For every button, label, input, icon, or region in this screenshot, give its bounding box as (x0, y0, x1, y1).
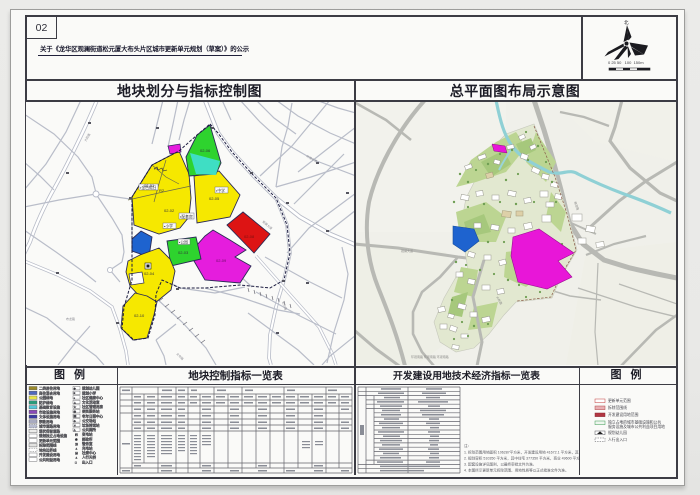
svg-text:市政设施用地: 市政设施用地 (39, 409, 60, 414)
svg-text:▲: ▲ (75, 456, 78, 460)
svg-text:●: ● (74, 396, 76, 400)
svg-text:▪公园: ▪公园 (179, 239, 188, 244)
svg-text:02-05: 02-05 (209, 196, 220, 201)
svg-text:▪小学: ▪小学 (164, 223, 173, 228)
svg-text:▼: ▼ (74, 423, 77, 427)
svg-text:0 25 50 100 150m: 0 25 50 100 150m (608, 60, 644, 65)
svg-text:4. 本图所示更新单元拆除范围、用地性质等以正式批准文件为准: 4. 本图所示更新单元拆除范围、用地性质等以正式批准文件为准。 (464, 468, 569, 473)
svg-text:02-10: 02-10 (134, 313, 145, 318)
svg-text:拆除范围线: 拆除范围线 (39, 443, 57, 448)
svg-text:出入口: 出入口 (82, 459, 93, 464)
svg-text:公共利益用地: 公共利益用地 (39, 457, 60, 462)
svg-text:◪: ◪ (75, 451, 78, 455)
svg-text:3. 配套设施详见图则，以最终审批文件为准。: 3. 配套设施详见图则，以最终审批文件为准。 (464, 462, 536, 467)
svg-text:城市道路用地: 城市道路用地 (39, 424, 60, 429)
svg-text:规划幼儿园: 规划幼儿园 (82, 386, 100, 391)
svg-text:02-06: 02-06 (200, 148, 211, 153)
svg-text:文化活动室: 文化活动室 (82, 400, 100, 405)
svg-text:地块边界线: 地块边界线 (39, 448, 57, 453)
svg-text:更新单元范围: 更新单元范围 (608, 398, 631, 403)
svg-text:布龙路: 布龙路 (66, 316, 75, 321)
svg-text:警务室: 警务室 (82, 441, 93, 446)
svg-text:公园绿地: 公园绿地 (39, 395, 53, 400)
svg-text:02-08: 02-08 (244, 234, 255, 239)
svg-text:02-03: 02-03 (178, 250, 189, 255)
svg-text:开发建设用地范围: 开发建设用地范围 (608, 412, 639, 417)
svg-text:人行天桥: 人行天桥 (82, 455, 96, 460)
svg-text:公交场站: 公交场站 (82, 418, 96, 423)
svg-text:充电站: 充电站 (82, 446, 93, 451)
svg-text:规划小学: 规划小学 (82, 390, 96, 395)
svg-text:拆除范围线: 拆除范围线 (608, 405, 627, 410)
svg-text:规划独立占地设施: 规划独立占地设施 (39, 433, 67, 438)
svg-text:观澜大道: 观澜大道 (401, 248, 413, 253)
svg-text:便民服务站: 便民服务站 (82, 409, 100, 414)
svg-text:1. 拆除范围用地面积 106287平方米，开发建设用地 4: 1. 拆除范围用地面积 106287平方米，开发建设用地 41672.1 平方米… (464, 450, 579, 455)
svg-text:文体设施用地: 文体设施用地 (39, 414, 60, 419)
svg-text:独立占地的城市基础设施和公共: 独立占地的城市基础设施和公共 (608, 420, 661, 425)
svg-text:现状保留道路: 现状保留道路 (39, 429, 60, 434)
svg-text:商住混合用地: 商住混合用地 (39, 390, 60, 395)
svg-text:▲: ▲ (75, 447, 78, 451)
svg-text:◨: ◨ (75, 442, 78, 446)
svg-text:02-09: 02-09 (216, 258, 227, 263)
svg-text:环观南路 环观南路 环观南路: 环观南路 环观南路 环观南路 (411, 354, 449, 359)
svg-text:北: 北 (624, 19, 629, 26)
svg-text:基础教育设施: 基础教育设施 (39, 405, 60, 410)
svg-text:规划幼儿园: 规划幼儿园 (608, 430, 627, 435)
svg-text:▪配套房: ▪配套房 (180, 214, 193, 219)
svg-text:社康中心: 社康中心 (82, 450, 96, 455)
svg-text:社区管理用房: 社区管理用房 (82, 404, 103, 409)
svg-text:02-01: 02-01 (144, 183, 155, 188)
svg-text:变电站: 变电站 (82, 432, 93, 437)
svg-text:人行出入口: 人行出入口 (608, 437, 627, 442)
svg-text:二类居住用地: 二类居住用地 (39, 386, 60, 391)
svg-text:⬟: ⬟ (75, 437, 78, 441)
svg-text:老年日照中心: 老年日照中心 (82, 413, 103, 418)
svg-text:▪中学: ▪中学 (216, 188, 225, 193)
svg-text:▲: ▲ (74, 400, 77, 404)
svg-text:更新单元范围: 更新单元范围 (39, 438, 60, 443)
svg-text:▪▫▪: ▪▫▪ (154, 166, 159, 171)
svg-text:2. 规划容积 510350 平方米，其中住宅 377350: 2. 规划容积 510350 平方米，其中住宅 377350 平方米，商业 49… (464, 456, 579, 461)
svg-text:服务设施及城市公共利益项目用地: 服务设施及城市公共利益项目用地 (608, 424, 665, 429)
svg-text:邮政所: 邮政所 (82, 436, 93, 441)
svg-text:□: □ (75, 460, 77, 464)
svg-text:社区健康中心: 社区健康中心 (82, 395, 103, 400)
svg-text:开发建设用地: 开发建设用地 (39, 452, 60, 457)
svg-text:垃圾转运站: 垃圾转运站 (82, 423, 100, 428)
svg-text:R2: R2 (159, 188, 165, 193)
svg-text:▣: ▣ (74, 414, 77, 418)
svg-text:■: ■ (74, 391, 76, 395)
svg-text:02-04: 02-04 (144, 271, 155, 276)
svg-text:防护绿地: 防护绿地 (39, 400, 53, 405)
svg-text:注：: 注： (464, 443, 471, 448)
svg-text:宗教用地: 宗教用地 (39, 419, 53, 424)
svg-text:公共厕所: 公共厕所 (82, 427, 96, 432)
svg-text:◩: ◩ (75, 433, 78, 437)
svg-text:02-02: 02-02 (164, 208, 175, 213)
